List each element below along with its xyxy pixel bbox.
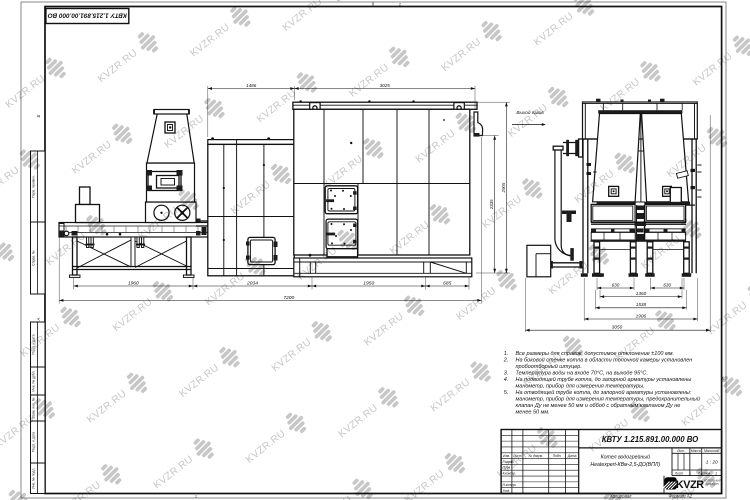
svg-text:Котел водогрейный: Котел водогрейный	[601, 454, 650, 461]
svg-text:630: 630	[663, 282, 671, 287]
svg-text:Лит.: Лит.	[676, 449, 685, 453]
svg-text:Утв.: Утв.	[503, 489, 511, 493]
svg-text:4.: 4.	[504, 377, 509, 383]
svg-text:клапан Ду не менее 50 мм и обб: клапан Ду не менее 50 мм и оббод с обрат…	[516, 403, 681, 409]
svg-text:1.: 1.	[504, 351, 509, 357]
svg-text:Масса: Масса	[691, 449, 701, 453]
svg-text:1360: 1360	[636, 291, 647, 296]
svg-text:1538: 1538	[636, 302, 647, 307]
svg-text:3050: 3050	[612, 325, 623, 330]
svg-text:2034: 2034	[246, 280, 258, 286]
svg-text:Б: Б	[36, 114, 41, 117]
svg-text:2.: 2.	[503, 358, 509, 364]
svg-text:Изм.: Изм.	[503, 454, 510, 458]
svg-text:1950: 1950	[363, 280, 374, 286]
svg-text:Heatexpert-КВм-2,5-ДО(ВПЛ): Heatexpert-КВм-2,5-ДО(ВПЛ)	[590, 462, 660, 468]
svg-text:5.: 5.	[504, 390, 509, 396]
svg-text:Подп.: Подп.	[553, 454, 562, 458]
svg-text:Н.контр.: Н.контр.	[503, 483, 517, 487]
svg-text:2335: 2335	[489, 199, 494, 210]
svg-text:1: 1	[715, 471, 717, 475]
svg-text:3025: 3025	[380, 83, 391, 88]
svg-text:Инв. № дубл.: Инв. № дубл.	[32, 370, 36, 391]
svg-text:1: 1	[689, 471, 691, 475]
svg-text:На отводящей трубе котла, до з: На отводящей трубе котла, до запорной ар…	[516, 389, 692, 396]
svg-text:КВТУ 1.215.891.00.000 ВО: КВТУ 1.215.891.00.000 ВО	[48, 11, 127, 18]
svg-text:1 : 20: 1 : 20	[706, 460, 718, 466]
svg-text:А: А	[36, 317, 41, 321]
svg-text:Масштаб: Масштаб	[704, 449, 720, 453]
svg-text:Подп. и дата: Подп. и дата	[32, 432, 36, 452]
svg-text:630: 630	[612, 282, 620, 287]
svg-text:7200: 7200	[283, 295, 294, 301]
svg-text:2905: 2905	[501, 182, 506, 193]
svg-text:1960: 1960	[128, 280, 139, 286]
svg-text:манометр, прибор для измерения: манометр, прибор для измерения температу…	[516, 395, 700, 402]
svg-text:Взам. инв. №: Взам. инв. №	[32, 397, 36, 418]
svg-text:манометр, прибор для измерения: манометр, прибор для измерения температу…	[516, 383, 645, 389]
svg-text:Лист: Лист	[674, 471, 684, 475]
svg-text:Справ. №: Справ. №	[32, 250, 36, 266]
svg-text:Инв. № подл.: Инв. № подл.	[32, 468, 36, 489]
svg-text:3.: 3.	[504, 371, 509, 377]
svg-text:Дата: Дата	[567, 454, 577, 458]
svg-text:Все размеры для справок, допус: Все размеры для справок, допустимое откл…	[516, 351, 675, 357]
svg-text:1486: 1486	[246, 83, 257, 88]
svg-text:685: 685	[443, 280, 451, 286]
svg-text:1906: 1906	[636, 313, 647, 318]
svg-text:Перв. примен.: Перв. примен.	[32, 175, 36, 198]
svg-text:менее 50 мм.: менее 50 мм.	[516, 409, 550, 415]
